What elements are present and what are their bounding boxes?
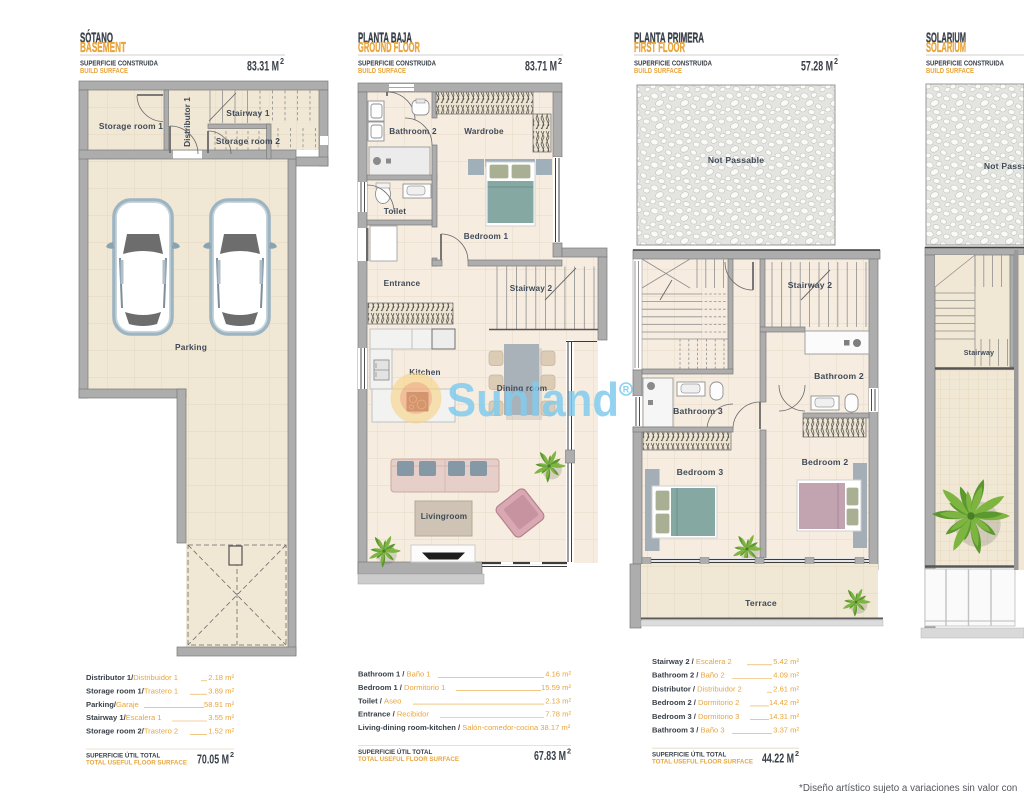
svg-text:4.09 m²: 4.09 m² bbox=[773, 671, 799, 680]
svg-text:2.18 m²: 2.18 m² bbox=[208, 673, 234, 682]
svg-text:BUILD SURFACE: BUILD SURFACE bbox=[358, 66, 406, 75]
svg-text:Parking: Parking bbox=[175, 342, 207, 352]
svg-text:5.42 m²: 5.42 m² bbox=[773, 657, 799, 666]
svg-text:Livingroom: Livingroom bbox=[421, 512, 468, 521]
svg-text:Distributor / Distribuidor 2: Distributor / Distribuidor 2 bbox=[652, 684, 742, 693]
svg-text:Stairway 2 / Escalera 2: Stairway 2 / Escalera 2 bbox=[652, 657, 732, 666]
svg-text:Bedroom 3 / Dormitorio 3: Bedroom 3 / Dormitorio 3 bbox=[652, 712, 739, 721]
svg-text:3.37 m²: 3.37 m² bbox=[773, 726, 799, 735]
svg-text:TOTAL USEFUL FLOOR SURFACE: TOTAL USEFUL FLOOR SURFACE bbox=[652, 759, 753, 766]
svg-text:Not Passable: Not Passable bbox=[708, 155, 764, 165]
svg-text:58.91 m²: 58.91 m² bbox=[204, 700, 234, 709]
svg-text:2.13 m²: 2.13 m² bbox=[545, 696, 571, 705]
svg-text:SUPERFICIE ÚTIL TOTAL: SUPERFICIE ÚTIL TOTAL bbox=[358, 749, 432, 756]
svg-text:Distributor 1/Distribuidor 1: Distributor 1/Distribuidor 1 bbox=[86, 673, 178, 682]
svg-text:Bathroom 3 / Baño 3: Bathroom 3 / Baño 3 bbox=[652, 726, 725, 735]
svg-text:2: 2 bbox=[567, 747, 571, 756]
svg-text:TOTAL USEFUL FLOOR SURFACE: TOTAL USEFUL FLOOR SURFACE bbox=[86, 760, 187, 767]
svg-text:BUILD SURFACE: BUILD SURFACE bbox=[80, 66, 128, 75]
svg-text:Storage room 1/Trastero 1: Storage room 1/Trastero 1 bbox=[86, 686, 178, 695]
svg-text:2: 2 bbox=[280, 57, 284, 66]
svg-text:TOTAL USEFUL FLOOR SURFACE: TOTAL USEFUL FLOOR SURFACE bbox=[358, 756, 459, 763]
svg-text:57.28 M: 57.28 M bbox=[801, 59, 833, 74]
svg-text:Stairway 1: Stairway 1 bbox=[226, 108, 270, 118]
svg-text:Entrance / Recibidor: Entrance / Recibidor bbox=[358, 710, 429, 719]
svg-text:14.31 m²: 14.31 m² bbox=[769, 712, 799, 721]
svg-text:2.61 m²: 2.61 m² bbox=[773, 684, 799, 693]
svg-text:SOLARIUM: SOLARIUM bbox=[926, 39, 966, 56]
svg-text:FIRST FLOOR: FIRST FLOOR bbox=[634, 39, 685, 56]
svg-text:Bedroom 2: Bedroom 2 bbox=[802, 457, 849, 467]
svg-text:Not Passable: Not Passable bbox=[984, 161, 1024, 171]
svg-text:Bathroom 2: Bathroom 2 bbox=[389, 127, 437, 136]
svg-text:Distributor 1: Distributor 1 bbox=[182, 97, 192, 147]
svg-text:Stairway 2: Stairway 2 bbox=[510, 284, 553, 293]
svg-text:15.59 m²: 15.59 m² bbox=[541, 683, 571, 692]
svg-text:3.55 m²: 3.55 m² bbox=[208, 713, 234, 722]
svg-text:R: R bbox=[623, 385, 630, 395]
svg-text:GROUND FLOOR: GROUND FLOOR bbox=[358, 39, 420, 56]
svg-text:Wardrobe: Wardrobe bbox=[464, 127, 504, 136]
svg-text:SUPERFICIE ÚTIL TOTAL: SUPERFICIE ÚTIL TOTAL bbox=[86, 753, 160, 760]
svg-text:2: 2 bbox=[230, 750, 234, 759]
svg-text:44.22 M: 44.22 M bbox=[762, 751, 794, 766]
svg-text:3.89 m²: 3.89 m² bbox=[208, 686, 234, 695]
svg-text:14.42 m²: 14.42 m² bbox=[769, 698, 799, 707]
svg-text:Storage room 1: Storage room 1 bbox=[99, 121, 163, 131]
svg-text:4.16 m²: 4.16 m² bbox=[545, 670, 571, 679]
svg-text:BUILD SURFACE: BUILD SURFACE bbox=[634, 66, 682, 75]
svg-text:83.31 M: 83.31 M bbox=[247, 59, 279, 74]
svg-text:Living-dining room-kitchen / S: Living-dining room-kitchen / Salón-comed… bbox=[358, 723, 571, 732]
svg-text:Stairway 2: Stairway 2 bbox=[788, 280, 833, 290]
svg-text:Terrace: Terrace bbox=[745, 598, 777, 608]
svg-text:7.78 m²: 7.78 m² bbox=[545, 710, 571, 719]
svg-text:Parking/Garaje: Parking/Garaje bbox=[86, 700, 139, 709]
svg-text:Bathroom 1 / Baño 1: Bathroom 1 / Baño 1 bbox=[358, 670, 431, 679]
svg-text:Bedroom 1: Bedroom 1 bbox=[464, 232, 509, 241]
svg-text:1.52 m²: 1.52 m² bbox=[208, 727, 234, 736]
svg-text:83.71 M: 83.71 M bbox=[525, 59, 557, 74]
svg-text:Toilet: Toilet bbox=[384, 207, 406, 216]
svg-text:2: 2 bbox=[795, 749, 799, 758]
svg-text:Sunland: Sunland bbox=[447, 373, 619, 426]
svg-text:Storage room 2/Trastero 2: Storage room 2/Trastero 2 bbox=[86, 727, 178, 736]
svg-text:Bedroom 2 / Dormitorio 2: Bedroom 2 / Dormitorio 2 bbox=[652, 698, 739, 707]
svg-text:BUILD SURFACE: BUILD SURFACE bbox=[926, 66, 974, 75]
svg-text:SUPERFICIE ÚTIL TOTAL: SUPERFICIE ÚTIL TOTAL bbox=[652, 752, 726, 759]
svg-text:Stairway: Stairway bbox=[964, 350, 994, 357]
svg-text:Bedroom 3: Bedroom 3 bbox=[677, 467, 724, 477]
svg-text:Toilet / Aseo: Toilet / Aseo bbox=[358, 696, 401, 705]
svg-text:70.05 M: 70.05 M bbox=[197, 752, 229, 767]
svg-text:Entrance: Entrance bbox=[384, 279, 421, 288]
svg-text:*Diseño artístico sujeto a var: *Diseño artístico sujeto a variaciones s… bbox=[799, 783, 1017, 794]
svg-text:BASEMENT: BASEMENT bbox=[80, 39, 126, 56]
svg-text:Stairway 1/Escalera 1: Stairway 1/Escalera 1 bbox=[86, 713, 162, 722]
svg-text:2: 2 bbox=[558, 57, 562, 66]
svg-text:67.83 M: 67.83 M bbox=[534, 748, 566, 763]
svg-text:2: 2 bbox=[834, 57, 838, 66]
svg-text:Bathroom 2: Bathroom 2 bbox=[814, 371, 864, 381]
svg-text:Storage room 2: Storage room 2 bbox=[216, 136, 280, 146]
svg-text:Bathroom 3: Bathroom 3 bbox=[673, 406, 723, 416]
svg-text:Bathroom 2 / Baño 2: Bathroom 2 / Baño 2 bbox=[652, 671, 725, 680]
svg-text:Bedroom 1 / Dormitorio 1: Bedroom 1 / Dormitorio 1 bbox=[358, 683, 445, 692]
